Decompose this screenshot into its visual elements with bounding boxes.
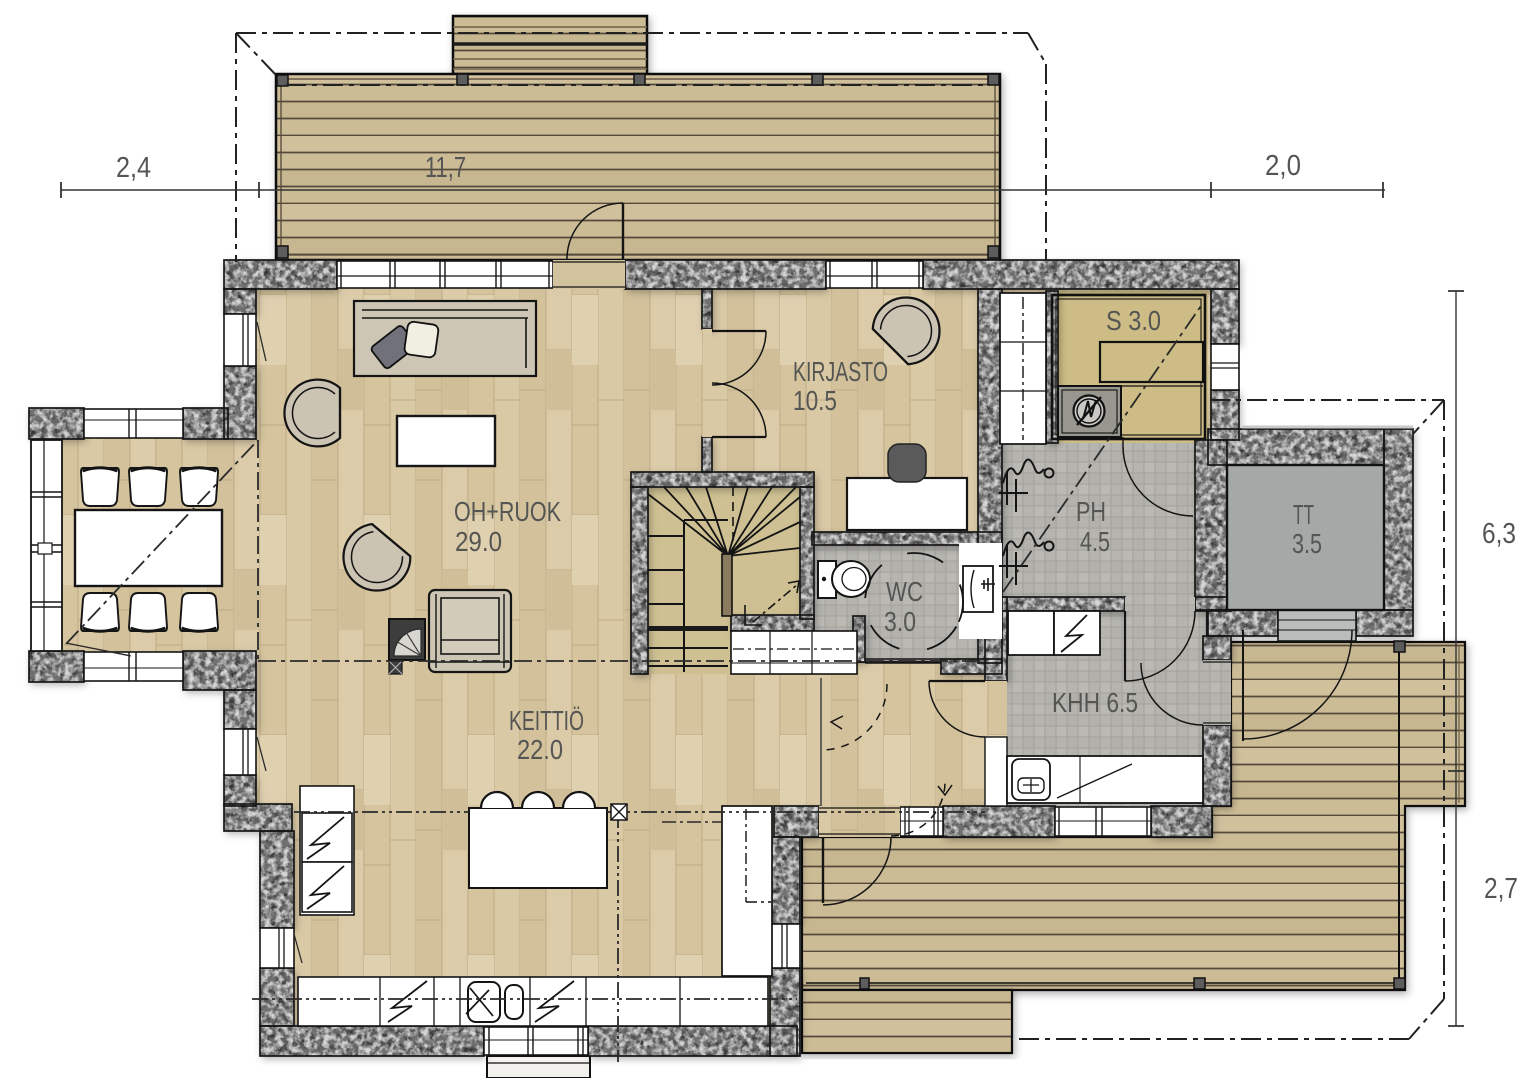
svg-text:KHH 6.5: KHH 6.5 bbox=[1052, 687, 1138, 718]
svg-text:29.0: 29.0 bbox=[455, 526, 502, 557]
svg-text:OH+RUOK: OH+RUOK bbox=[454, 496, 561, 527]
svg-text:10.5: 10.5 bbox=[793, 385, 837, 416]
svg-text:WC: WC bbox=[886, 576, 923, 607]
svg-text:S 3.0: S 3.0 bbox=[1106, 305, 1161, 336]
svg-text:4.5: 4.5 bbox=[1080, 526, 1110, 557]
svg-text:22.0: 22.0 bbox=[517, 734, 563, 765]
svg-text:2,0: 2,0 bbox=[1265, 150, 1301, 182]
svg-text:2,4: 2,4 bbox=[116, 152, 151, 184]
svg-text:3.5: 3.5 bbox=[1292, 528, 1322, 559]
svg-text:KIRJASTO: KIRJASTO bbox=[793, 356, 888, 387]
svg-text:11,7: 11,7 bbox=[425, 152, 466, 184]
svg-text:KEITTIÖ: KEITTIÖ bbox=[509, 705, 584, 736]
svg-text:2,7: 2,7 bbox=[1484, 873, 1518, 905]
svg-text:TT: TT bbox=[1293, 499, 1314, 530]
svg-text:6,3: 6,3 bbox=[1482, 518, 1516, 550]
svg-text:3.0: 3.0 bbox=[884, 606, 916, 637]
svg-text:PH: PH bbox=[1076, 496, 1106, 527]
